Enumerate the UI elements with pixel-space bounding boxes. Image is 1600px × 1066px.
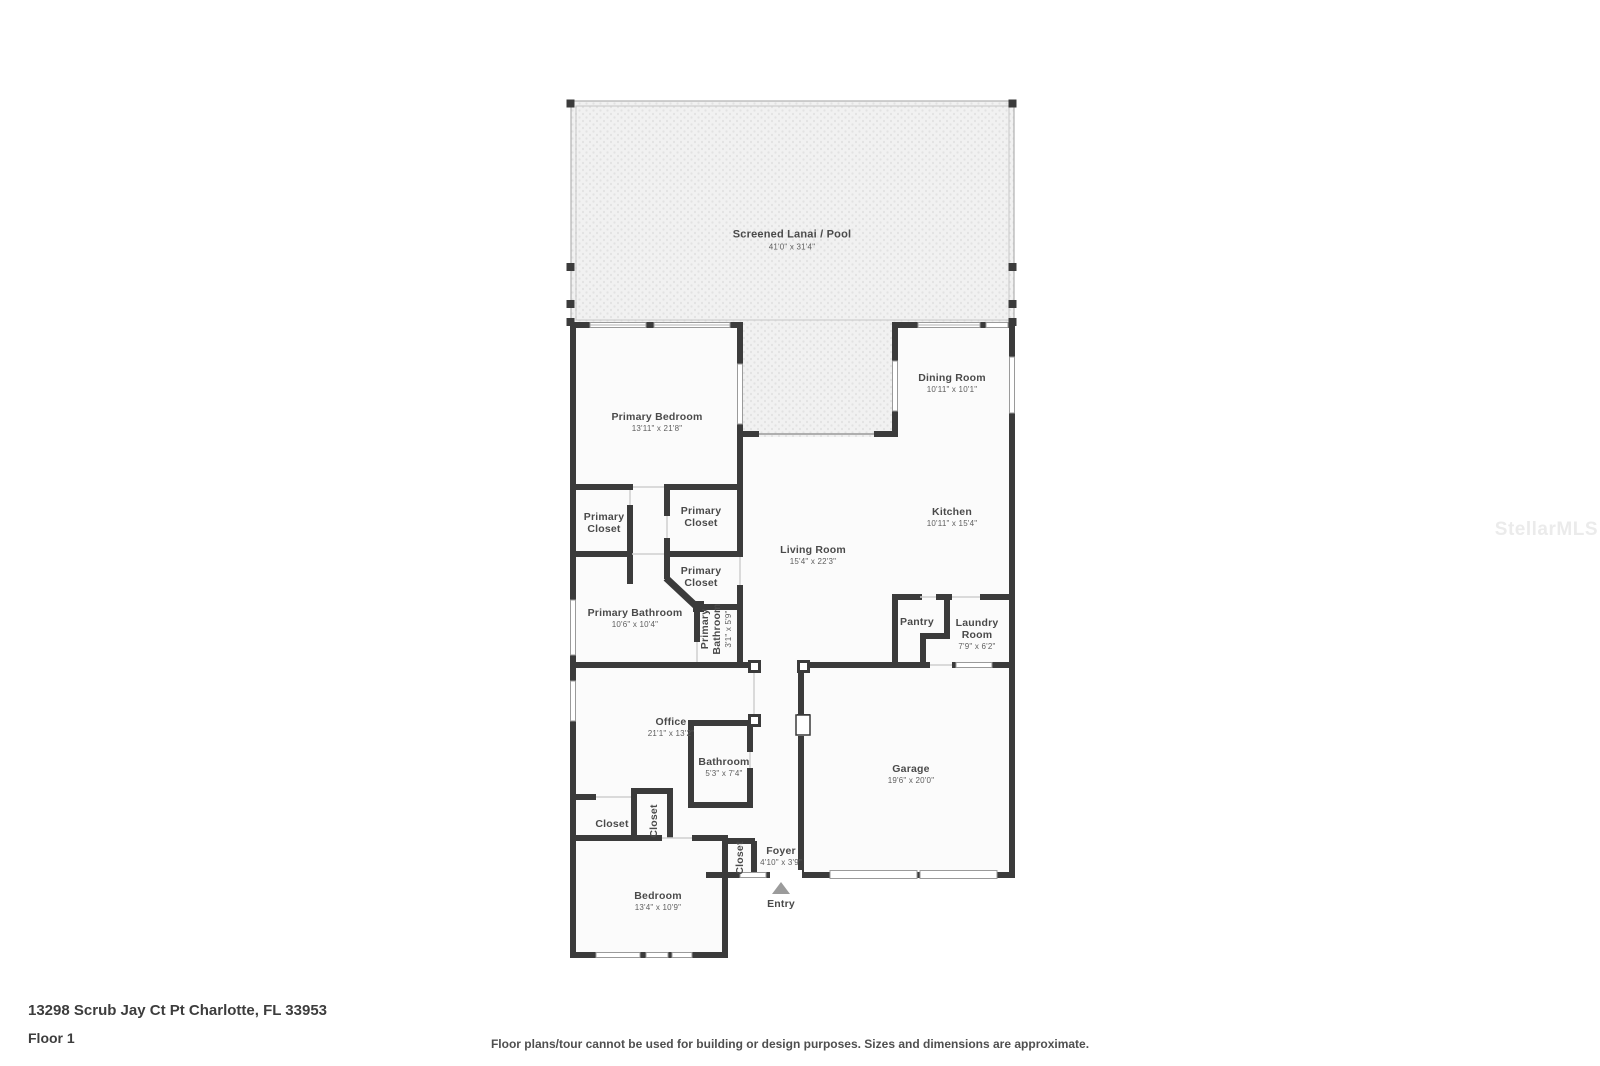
room-name: Bathroom bbox=[698, 756, 749, 768]
room-label-primary-bathroom: Primary Bathroom 10'6" x 10'4" bbox=[570, 607, 700, 629]
room-dims: 4'10" x 3'9" bbox=[760, 858, 802, 867]
room-label-primary-bedroom: Primary Bedroom 13'11" x 21'8" bbox=[611, 411, 702, 433]
room-name: Primary Bedroom bbox=[611, 411, 702, 423]
floorplan-page: Screened Lanai / Pool 41'0" x 31'4" Prim… bbox=[0, 0, 1600, 1066]
room-dims: 13'4" x 10'9" bbox=[634, 903, 682, 912]
room-label-garage: Garage 19'6" x 20'0" bbox=[888, 763, 934, 785]
room-label-primary-bathroom-wc: Primary Bathroom 3'1" x 5'9" bbox=[699, 599, 733, 659]
watermark: StellarMLS bbox=[1495, 519, 1598, 541]
room-label-pantry: Pantry bbox=[900, 616, 934, 628]
property-address: 13298 Scrub Jay Ct Pt Charlotte, FL 3395… bbox=[28, 1002, 327, 1019]
room-label-laundry-room: Laundry Room 7'9" x 6'2" bbox=[951, 617, 1003, 651]
room-name: Garage bbox=[888, 763, 934, 775]
room-name: Primary Closet bbox=[577, 511, 631, 535]
room-label-primary-closet-3: Primary Closet bbox=[674, 565, 728, 589]
disclaimer-text: Floor plans/tour cannot be used for buil… bbox=[0, 1037, 1580, 1051]
room-name: Laundry Room bbox=[951, 617, 1003, 641]
room-label-living-room: Living Room 15'4" x 22'3" bbox=[780, 544, 846, 566]
room-label-closet-foyer: Closet bbox=[734, 841, 746, 874]
room-label-dining-room: Dining Room 10'11" x 10'1" bbox=[918, 372, 986, 394]
room-label-bathroom: Bathroom 5'3" x 7'4" bbox=[698, 756, 749, 778]
room-label-closet-hall-2: Closet bbox=[648, 804, 660, 837]
room-label-primary-closet-2: Primary Closet bbox=[674, 505, 728, 529]
room-dims: 13'11" x 21'8" bbox=[611, 424, 702, 433]
room-label-bedroom: Bedroom 13'4" x 10'9" bbox=[634, 890, 682, 912]
room-name: Screened Lanai / Pool bbox=[733, 229, 852, 242]
room-name: Bedroom bbox=[634, 890, 682, 902]
garage-entry-door bbox=[796, 715, 810, 735]
room-name: Primary Bathroom bbox=[699, 599, 723, 659]
entry-opening bbox=[770, 870, 802, 880]
room-dims: 41'0" x 31'4" bbox=[733, 242, 852, 251]
room-name: Kitchen bbox=[927, 506, 978, 518]
room-dims: 7'9" x 6'2" bbox=[951, 642, 1003, 651]
room-label-primary-closet-1: Primary Closet bbox=[577, 511, 631, 535]
room-name: Office bbox=[648, 716, 694, 728]
room-label-kitchen: Kitchen 10'11" x 15'4" bbox=[927, 506, 978, 528]
garage-door bbox=[830, 871, 997, 879]
room-name: Primary Bathroom bbox=[570, 607, 700, 619]
entry-arrow-icon bbox=[772, 882, 790, 894]
room-dims: 10'11" x 15'4" bbox=[927, 519, 978, 528]
room-label-closet-hall: Closet bbox=[595, 818, 628, 830]
room-dims: 19'6" x 20'0" bbox=[888, 776, 934, 785]
room-name: Primary Closet bbox=[674, 505, 728, 529]
room-dims: 5'3" x 7'4" bbox=[698, 769, 749, 778]
room-label-foyer: Foyer 4'10" x 3'9" bbox=[760, 845, 802, 867]
room-name: Pantry bbox=[900, 616, 934, 628]
room-name: Living Room bbox=[780, 544, 846, 556]
room-name: Closet bbox=[648, 804, 660, 837]
room-name: Foyer bbox=[760, 845, 802, 857]
room-label-office: Office 21'1" x 13'2" bbox=[648, 716, 694, 738]
room-name: Closet bbox=[595, 818, 628, 830]
room-dims: 3'1" x 5'9" bbox=[724, 599, 733, 659]
room-dims: 10'6" x 10'4" bbox=[570, 620, 700, 629]
room-label-lanai: Screened Lanai / Pool 41'0" x 31'4" bbox=[733, 229, 852, 252]
room-dims: 21'1" x 13'2" bbox=[648, 729, 694, 738]
room-name: Dining Room bbox=[918, 372, 986, 384]
room-dims: 10'11" x 10'1" bbox=[918, 385, 986, 394]
room-name: Closet bbox=[734, 841, 746, 874]
floorplan-drawing bbox=[0, 0, 1600, 1066]
room-dims: 15'4" x 22'3" bbox=[780, 557, 846, 566]
entry-label: Entry bbox=[767, 898, 795, 910]
room-name: Primary Closet bbox=[674, 565, 728, 589]
